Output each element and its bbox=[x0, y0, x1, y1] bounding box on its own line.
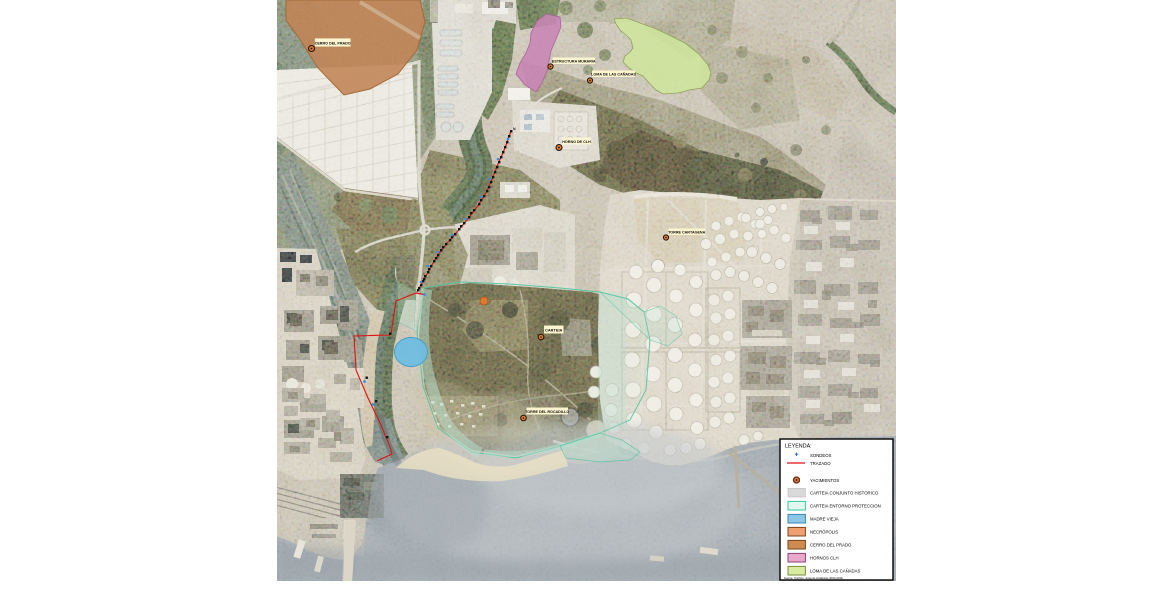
svg-text:CARTEIA CONJUNTO HISTORICO: CARTEIA CONJUNTO HISTORICO bbox=[810, 491, 879, 496]
svg-text:CERRO DEL PRADO: CERRO DEL PRADO bbox=[315, 41, 351, 45]
svg-text:LEYENDA:: LEYENDA: bbox=[785, 444, 812, 450]
svg-text:TORRE DEL ROCADILLO: TORRE DEL ROCADILLO bbox=[525, 410, 569, 414]
svg-text:SONDEOS: SONDEOS bbox=[810, 453, 832, 458]
svg-text:NECRÓPOLIS: NECRÓPOLIS bbox=[810, 530, 838, 535]
svg-text:ESTRUCTURA MURARIA: ESTRUCTURA MURARIA bbox=[552, 60, 596, 64]
svg-text:YACIMIENTOS: YACIMIENTOS bbox=[810, 478, 839, 483]
svg-text:LOMA DE LAS CAÑADAS: LOMA DE LAS CAÑADAS bbox=[810, 569, 861, 574]
svg-text:TORRE CARTAGENA: TORRE CARTAGENA bbox=[668, 231, 705, 235]
svg-text:MADRE VIEJA: MADRE VIEJA bbox=[810, 517, 839, 522]
svg-text:CARTEIA ENTORNO PROTECCION: CARTEIA ENTORNO PROTECCION bbox=[810, 504, 881, 509]
svg-text:TRAZADO: TRAZADO bbox=[810, 461, 831, 466]
svg-text:Fuente: Ortofoto: Junta de And: Fuente: Ortofoto: Junta de Andalucía (20… bbox=[784, 576, 843, 580]
svg-text:LOMA DE LAS CAÑADAS: LOMA DE LAS CAÑADAS bbox=[591, 72, 636, 77]
svg-text:CARTEIA: CARTEIA bbox=[545, 327, 562, 332]
svg-text:CERRO DEL PRADO: CERRO DEL PRADO bbox=[810, 543, 852, 548]
svg-text:HORNOS CLH: HORNOS CLH bbox=[810, 556, 839, 561]
svg-text:HORNO DE CLH: HORNO DE CLH bbox=[562, 140, 591, 144]
